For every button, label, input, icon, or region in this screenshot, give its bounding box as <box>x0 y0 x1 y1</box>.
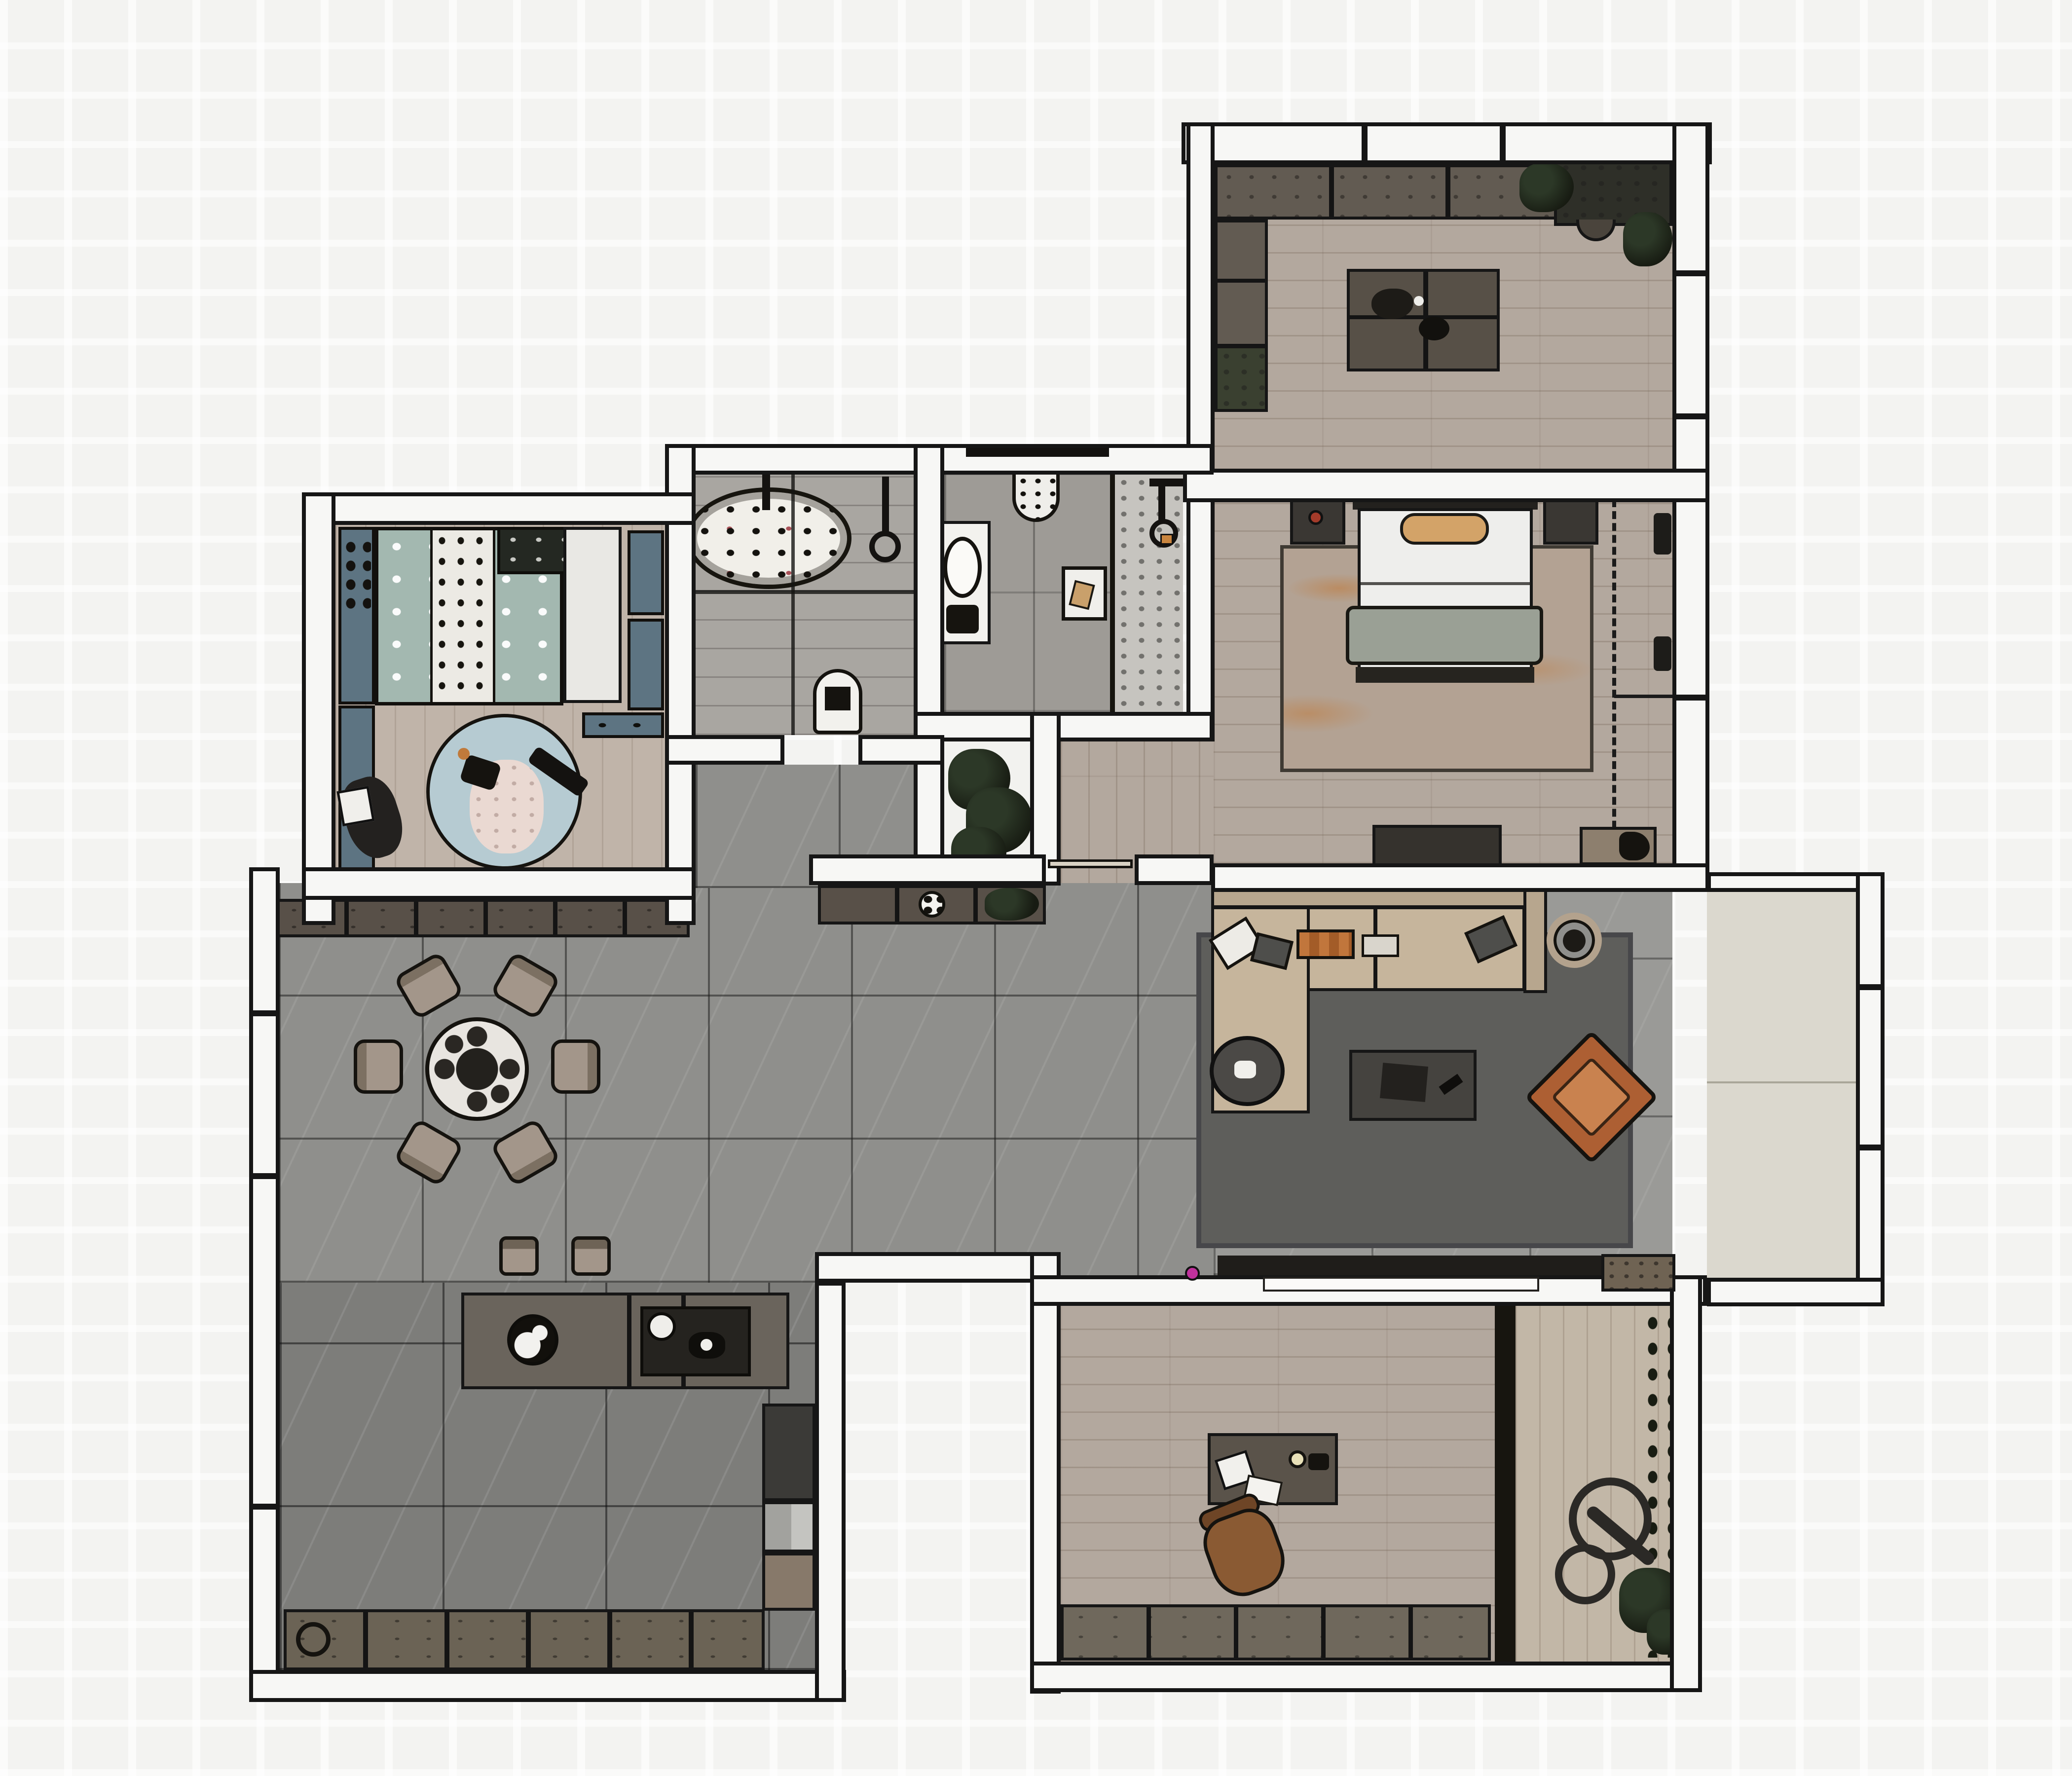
railing-tick <box>1856 984 1885 990</box>
office-phone-icon <box>1308 1453 1329 1470</box>
dining-area-floor <box>279 883 1214 1283</box>
dining-table <box>425 1017 529 1121</box>
wall-bath-bottom-right <box>858 735 944 765</box>
wall-top-kitchen-lounge <box>1182 122 1712 164</box>
bar-stool <box>499 1236 539 1276</box>
nightstand-lamp-icon <box>1308 510 1323 525</box>
sideboard-globe-icon <box>919 891 945 918</box>
wall-living-top <box>1211 863 1709 892</box>
office-lamp-icon <box>1289 1450 1306 1468</box>
kids-panel-right-1 <box>628 530 664 615</box>
kids-white-wardrobe <box>563 527 622 703</box>
bar-stool <box>571 1236 611 1276</box>
window-tick <box>1672 270 1709 276</box>
tall-unit-fridge <box>762 1501 815 1553</box>
kids-shelf-low <box>582 712 664 738</box>
balcony-railing <box>1856 872 1885 1306</box>
office-low-cabinets <box>1061 1604 1491 1661</box>
wall-kids-left <box>302 492 335 925</box>
window-tick <box>1672 695 1709 701</box>
floor-plan <box>0 0 2072 1776</box>
shower-tray <box>1115 475 1183 712</box>
wall-left-outer <box>249 867 280 1702</box>
window-tick <box>249 1010 280 1016</box>
wall-shower-divider <box>914 444 944 886</box>
wall-basin-icon <box>1012 475 1060 522</box>
wardrobe-items-icon <box>1654 513 1671 555</box>
island-cup-icon <box>1414 296 1424 306</box>
island-bowl-icon <box>1419 317 1449 340</box>
floor-plan-canvas: { "document": { "kind": "apartment floor… <box>0 0 2072 1776</box>
window-tick <box>249 1173 280 1179</box>
vanity-basin-icon <box>943 537 982 598</box>
dining-chair <box>551 1039 600 1094</box>
wall-hall-top-left <box>809 854 1046 885</box>
coffee-table-tray-icon <box>1380 1063 1428 1102</box>
railing-tick <box>1856 1145 1885 1150</box>
wall-tick <box>1500 122 1506 164</box>
wall-kids-top <box>302 492 696 525</box>
wall-counter-run <box>1215 164 1560 220</box>
wall-balcony-bottom <box>1707 1278 1885 1306</box>
exercise-bike-pedal-icon <box>1555 1544 1615 1604</box>
nightstand-right <box>1543 497 1598 545</box>
bath-toilet-lid-icon <box>825 687 851 710</box>
bed-foot-bench <box>1356 667 1534 683</box>
vanity-seat-icon <box>946 605 979 633</box>
wall-tick <box>1362 122 1368 164</box>
shower2-pipe-icon <box>1158 479 1165 524</box>
bed-sheet-fold <box>1360 582 1531 585</box>
side-table-plant-icon <box>1563 929 1586 952</box>
sideboard-long <box>276 899 690 937</box>
bed-pillow <box>1400 513 1489 545</box>
shower-arm-icon <box>882 477 889 532</box>
pillow-small-icon <box>1362 934 1399 957</box>
wardrobe-items-icon-2 <box>1654 636 1671 671</box>
wall-office-bottom <box>1030 1662 1702 1692</box>
shower2-handle-icon <box>1160 534 1173 545</box>
sliding-door <box>966 448 1109 457</box>
kitchen-pan-lid-icon <box>701 1339 712 1351</box>
wall-bedroom-divider <box>1183 469 1709 502</box>
bath-glass-partition <box>791 475 795 735</box>
office-divider-wall <box>1495 1306 1516 1662</box>
wall-bath-bottom-left <box>665 735 784 765</box>
kitchen-pot-icon <box>647 1312 676 1341</box>
balcony-floor <box>1707 892 1856 1278</box>
shower2-arm-icon <box>1149 479 1185 486</box>
wall-kitchen-bottom <box>249 1670 846 1702</box>
bedroom-tv-console <box>1372 825 1502 866</box>
shower-head-icon <box>869 531 901 562</box>
side-counter-plant-segment <box>1215 345 1268 412</box>
balcony-floor-joint <box>1707 1081 1856 1083</box>
wall-tv <box>1218 1256 1601 1275</box>
kids-wardrobe-items-icon <box>342 538 371 612</box>
kitchen-base-cabinets <box>284 1609 765 1670</box>
tall-unit-oven <box>762 1553 815 1611</box>
kitchen-sink-icon <box>507 1314 558 1366</box>
kids-bed-blanket <box>430 530 495 702</box>
bed-blanket <box>1346 606 1543 665</box>
wall-void-top <box>815 1252 1061 1283</box>
robot-vacuum-icon <box>1185 1266 1200 1281</box>
bathtub-faucet-icon <box>762 475 770 510</box>
corridor-door-leaf <box>1048 859 1133 868</box>
dining-chair <box>354 1039 403 1094</box>
wardrobe-shelf-line <box>1614 695 1672 698</box>
kitchen-cabinet-wheel-icon <box>296 1622 331 1657</box>
shower-screen-line <box>1110 475 1115 712</box>
wall-shower-bottom <box>914 712 1214 741</box>
kids-laptop-icon <box>336 786 375 826</box>
wall-void-right <box>1030 1252 1061 1694</box>
wall-balcony-top <box>1707 872 1860 892</box>
wall-hall-top-right <box>1135 854 1214 885</box>
wall-kids-bottom <box>302 867 696 900</box>
wardrobe-dashed-line <box>1612 499 1616 864</box>
window-tick <box>249 1504 280 1510</box>
sofa-armrest <box>1523 886 1547 993</box>
ottoman-paper-icon <box>1234 1061 1256 1078</box>
media-shelf <box>1263 1277 1539 1292</box>
tall-unit-top <box>762 1404 815 1501</box>
kids-panel-right-2 <box>628 619 664 710</box>
kids-toy-dot-icon <box>458 748 470 760</box>
bath-step-line <box>696 590 914 594</box>
wall-void-left <box>815 1282 846 1702</box>
wall-office-right <box>1670 1275 1702 1692</box>
window-tick <box>1672 413 1709 419</box>
pillow-orange-icon <box>1296 929 1355 959</box>
wall-left-upper-block <box>1186 122 1215 741</box>
balcony-doormat <box>1601 1254 1675 1292</box>
